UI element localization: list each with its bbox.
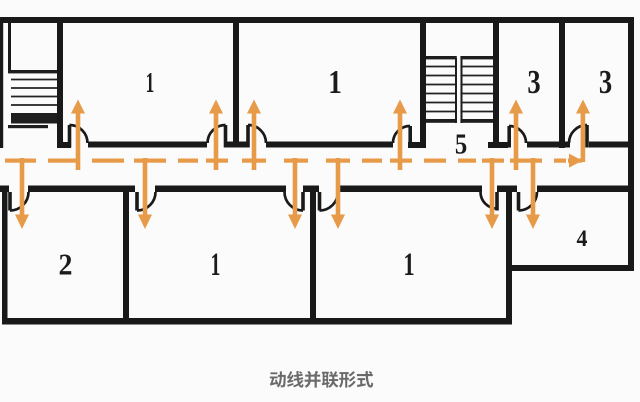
svg-text:1: 1: [211, 246, 221, 282]
svg-text:2: 2: [59, 248, 73, 282]
svg-text:4: 4: [577, 225, 588, 251]
svg-text:3: 3: [527, 63, 540, 101]
svg-text:5: 5: [455, 128, 467, 160]
svg-text:1: 1: [146, 68, 155, 99]
svg-text:1: 1: [403, 247, 414, 283]
svg-text:3: 3: [599, 63, 612, 101]
svg-text:1: 1: [328, 63, 342, 101]
